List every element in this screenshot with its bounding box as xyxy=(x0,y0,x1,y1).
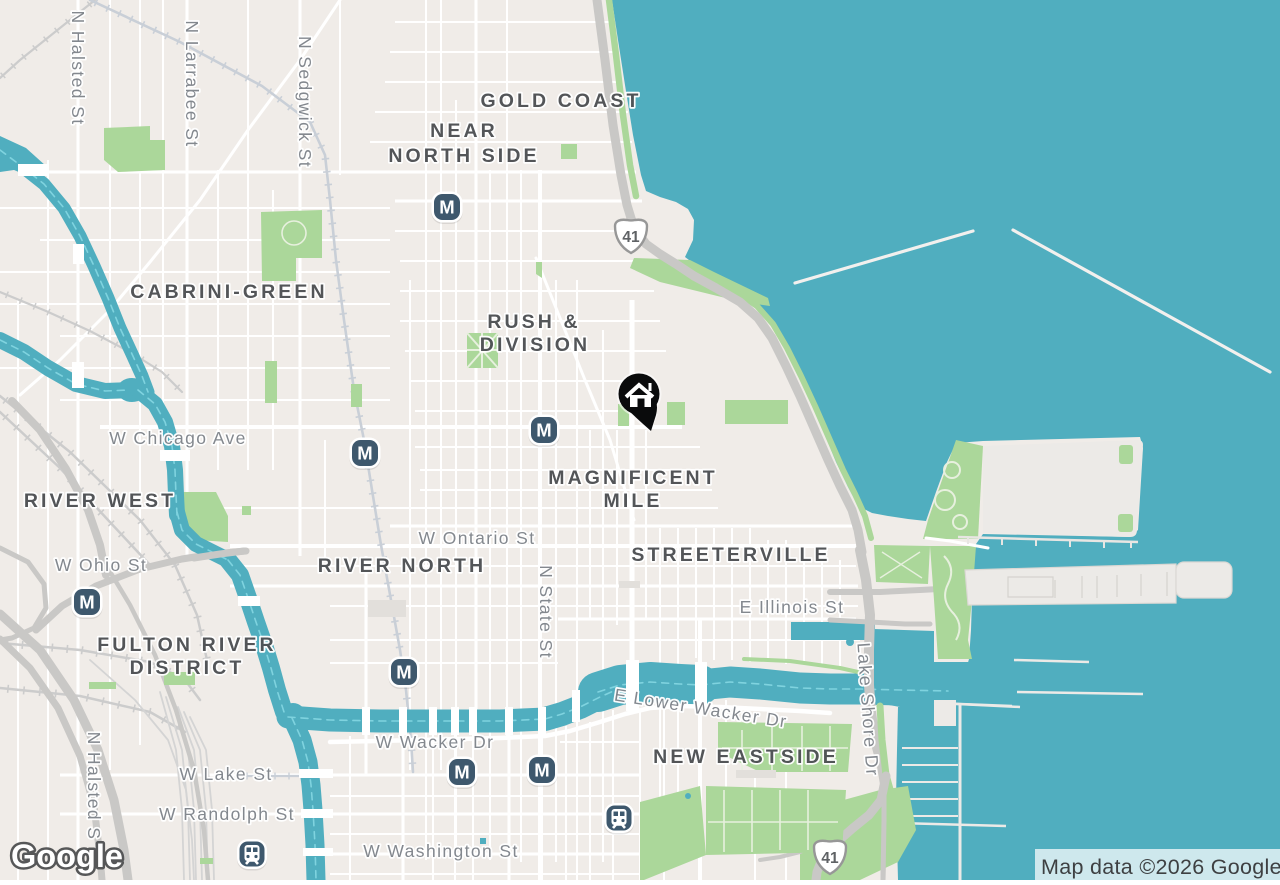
svg-text:W Randolph St: W Randolph St xyxy=(159,804,295,824)
svg-text:E Illinois St: E Illinois St xyxy=(740,597,845,617)
svg-text:M: M xyxy=(534,760,549,781)
svg-text:M: M xyxy=(79,592,94,613)
svg-text:Google: Google xyxy=(11,838,123,874)
svg-text:N State St: N State St xyxy=(536,565,556,659)
svg-text:CABRINI-GREEN: CABRINI-GREEN xyxy=(130,281,327,303)
svg-text:NORTH SIDE: NORTH SIDE xyxy=(388,145,539,167)
svg-text:M: M xyxy=(454,762,469,783)
svg-text:MAGNIFICENT: MAGNIFICENT xyxy=(548,467,718,489)
svg-text:N Larrabee St: N Larrabee St xyxy=(182,20,202,147)
svg-text:DISTRICT: DISTRICT xyxy=(130,657,245,679)
svg-text:W Lake St: W Lake St xyxy=(179,764,272,784)
svg-text:Map data ©2026 Google: Map data ©2026 Google xyxy=(1041,855,1280,879)
svg-text:DIVISION: DIVISION xyxy=(480,334,590,356)
svg-text:GOLD COAST: GOLD COAST xyxy=(481,90,642,112)
svg-text:41: 41 xyxy=(821,850,839,867)
svg-text:RIVER WEST: RIVER WEST xyxy=(24,490,176,512)
svg-text:W Chicago Ave: W Chicago Ave xyxy=(109,428,247,448)
svg-text:W Ohio St: W Ohio St xyxy=(55,555,147,575)
svg-text:NEAR: NEAR xyxy=(430,120,498,142)
svg-text:M: M xyxy=(357,443,372,464)
svg-text:M: M xyxy=(536,420,551,441)
svg-text:RUSH &: RUSH & xyxy=(487,311,580,333)
svg-text:N Halsted S: N Halsted S xyxy=(84,732,104,841)
svg-text:41: 41 xyxy=(622,229,640,246)
svg-text:N Sedgwick St: N Sedgwick St xyxy=(295,36,315,168)
svg-text:STREETERVILLE: STREETERVILLE xyxy=(631,544,830,566)
svg-text:N Halsted St: N Halsted St xyxy=(68,10,88,125)
svg-text:RIVER NORTH: RIVER NORTH xyxy=(318,555,486,577)
svg-text:M: M xyxy=(396,662,411,683)
svg-text:FULTON RIVER: FULTON RIVER xyxy=(97,634,276,656)
svg-text:NEW EASTSIDE: NEW EASTSIDE xyxy=(653,746,839,768)
svg-text:W Washington St: W Washington St xyxy=(363,841,519,861)
svg-text:M: M xyxy=(439,197,454,218)
svg-text:W Wacker Dr: W Wacker Dr xyxy=(376,732,495,752)
svg-text:MILE: MILE xyxy=(604,490,663,512)
svg-text:W Ontario St: W Ontario St xyxy=(419,528,536,548)
